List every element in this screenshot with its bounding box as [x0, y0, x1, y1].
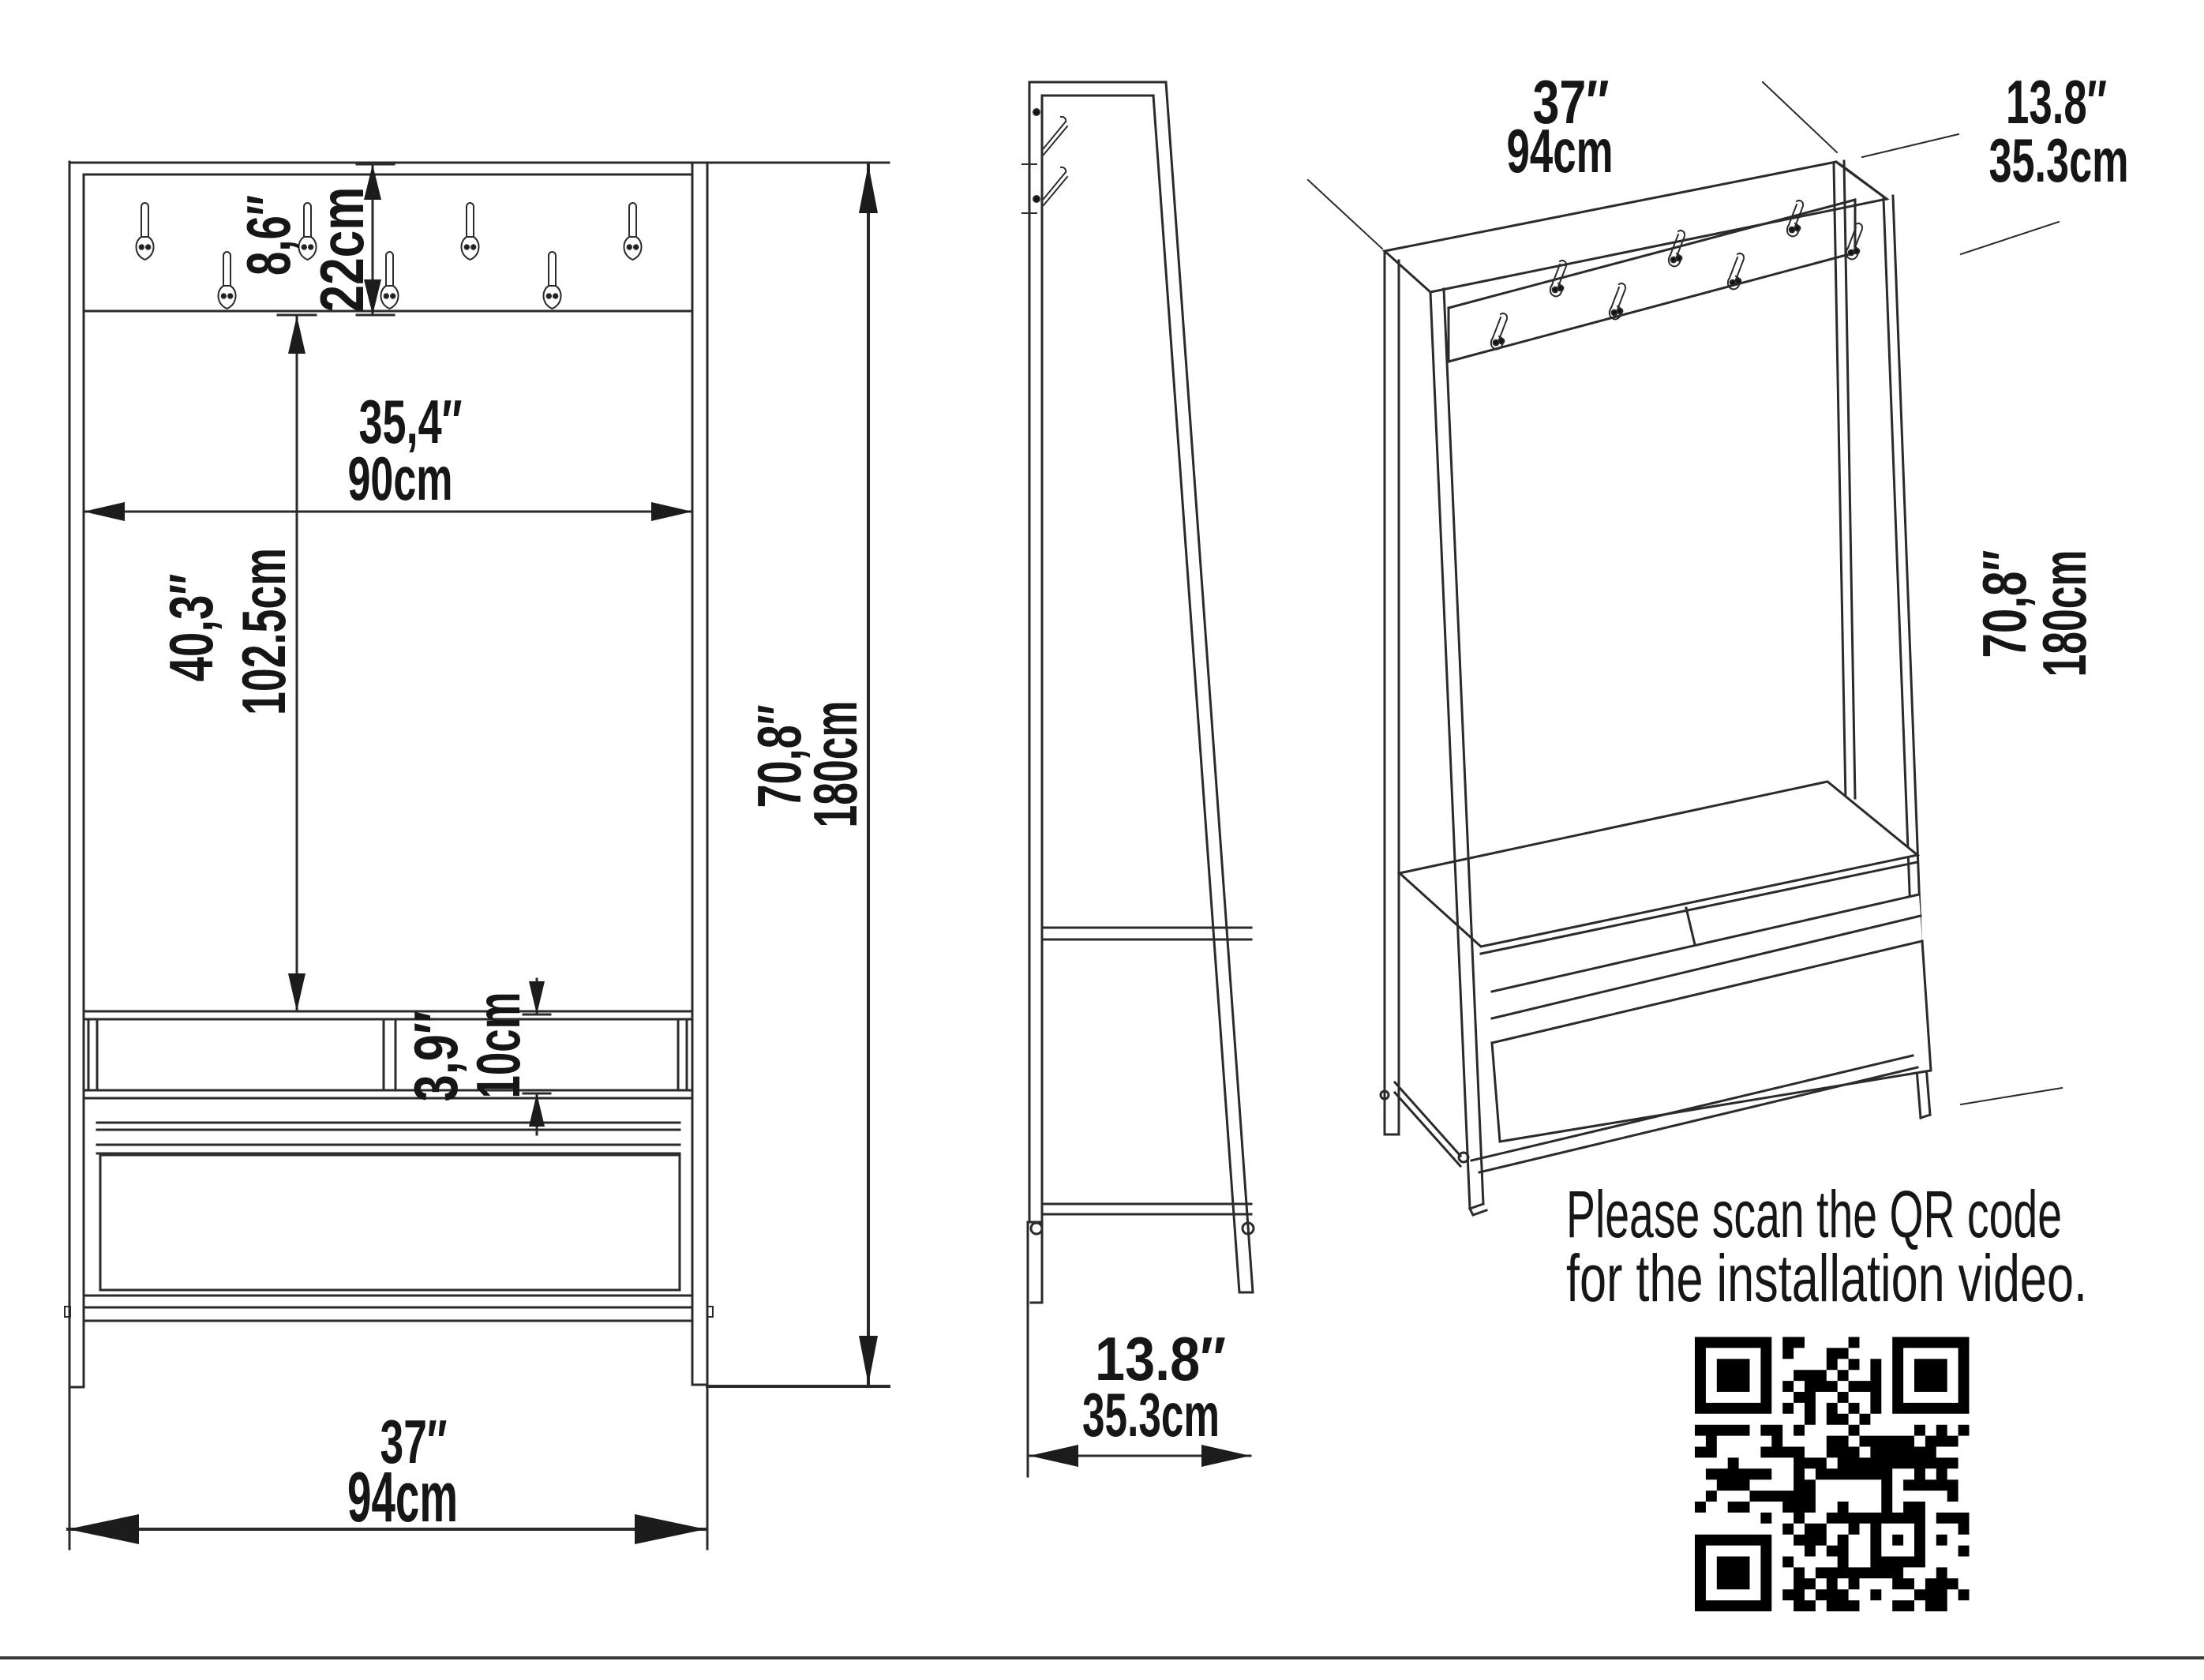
svg-text:90cm: 90cm — [348, 444, 453, 513]
svg-text:for the installation video.: for the installation video. — [1566, 1241, 2087, 1315]
svg-text:94cm: 94cm — [1507, 116, 1614, 186]
svg-text:35.3cm: 35.3cm — [1989, 126, 2129, 195]
svg-text:22cm: 22cm — [307, 187, 377, 313]
svg-text:94cm: 94cm — [347, 1458, 458, 1537]
svg-text:10cm: 10cm — [463, 992, 533, 1099]
svg-text:8,6″: 8,6″ — [234, 195, 303, 276]
svg-text:3,9″: 3,9″ — [401, 1011, 470, 1102]
svg-text:180cm: 180cm — [2030, 550, 2099, 677]
svg-text:Please scan the QR code: Please scan the QR code — [1566, 1177, 2062, 1251]
svg-text:35.3cm: 35.3cm — [1082, 1380, 1220, 1449]
svg-text:70,8″: 70,8″ — [1970, 550, 2039, 658]
svg-text:102.5cm: 102.5cm — [229, 548, 298, 715]
svg-text:40,3″: 40,3″ — [156, 574, 226, 682]
svg-text:180cm: 180cm — [800, 701, 870, 828]
